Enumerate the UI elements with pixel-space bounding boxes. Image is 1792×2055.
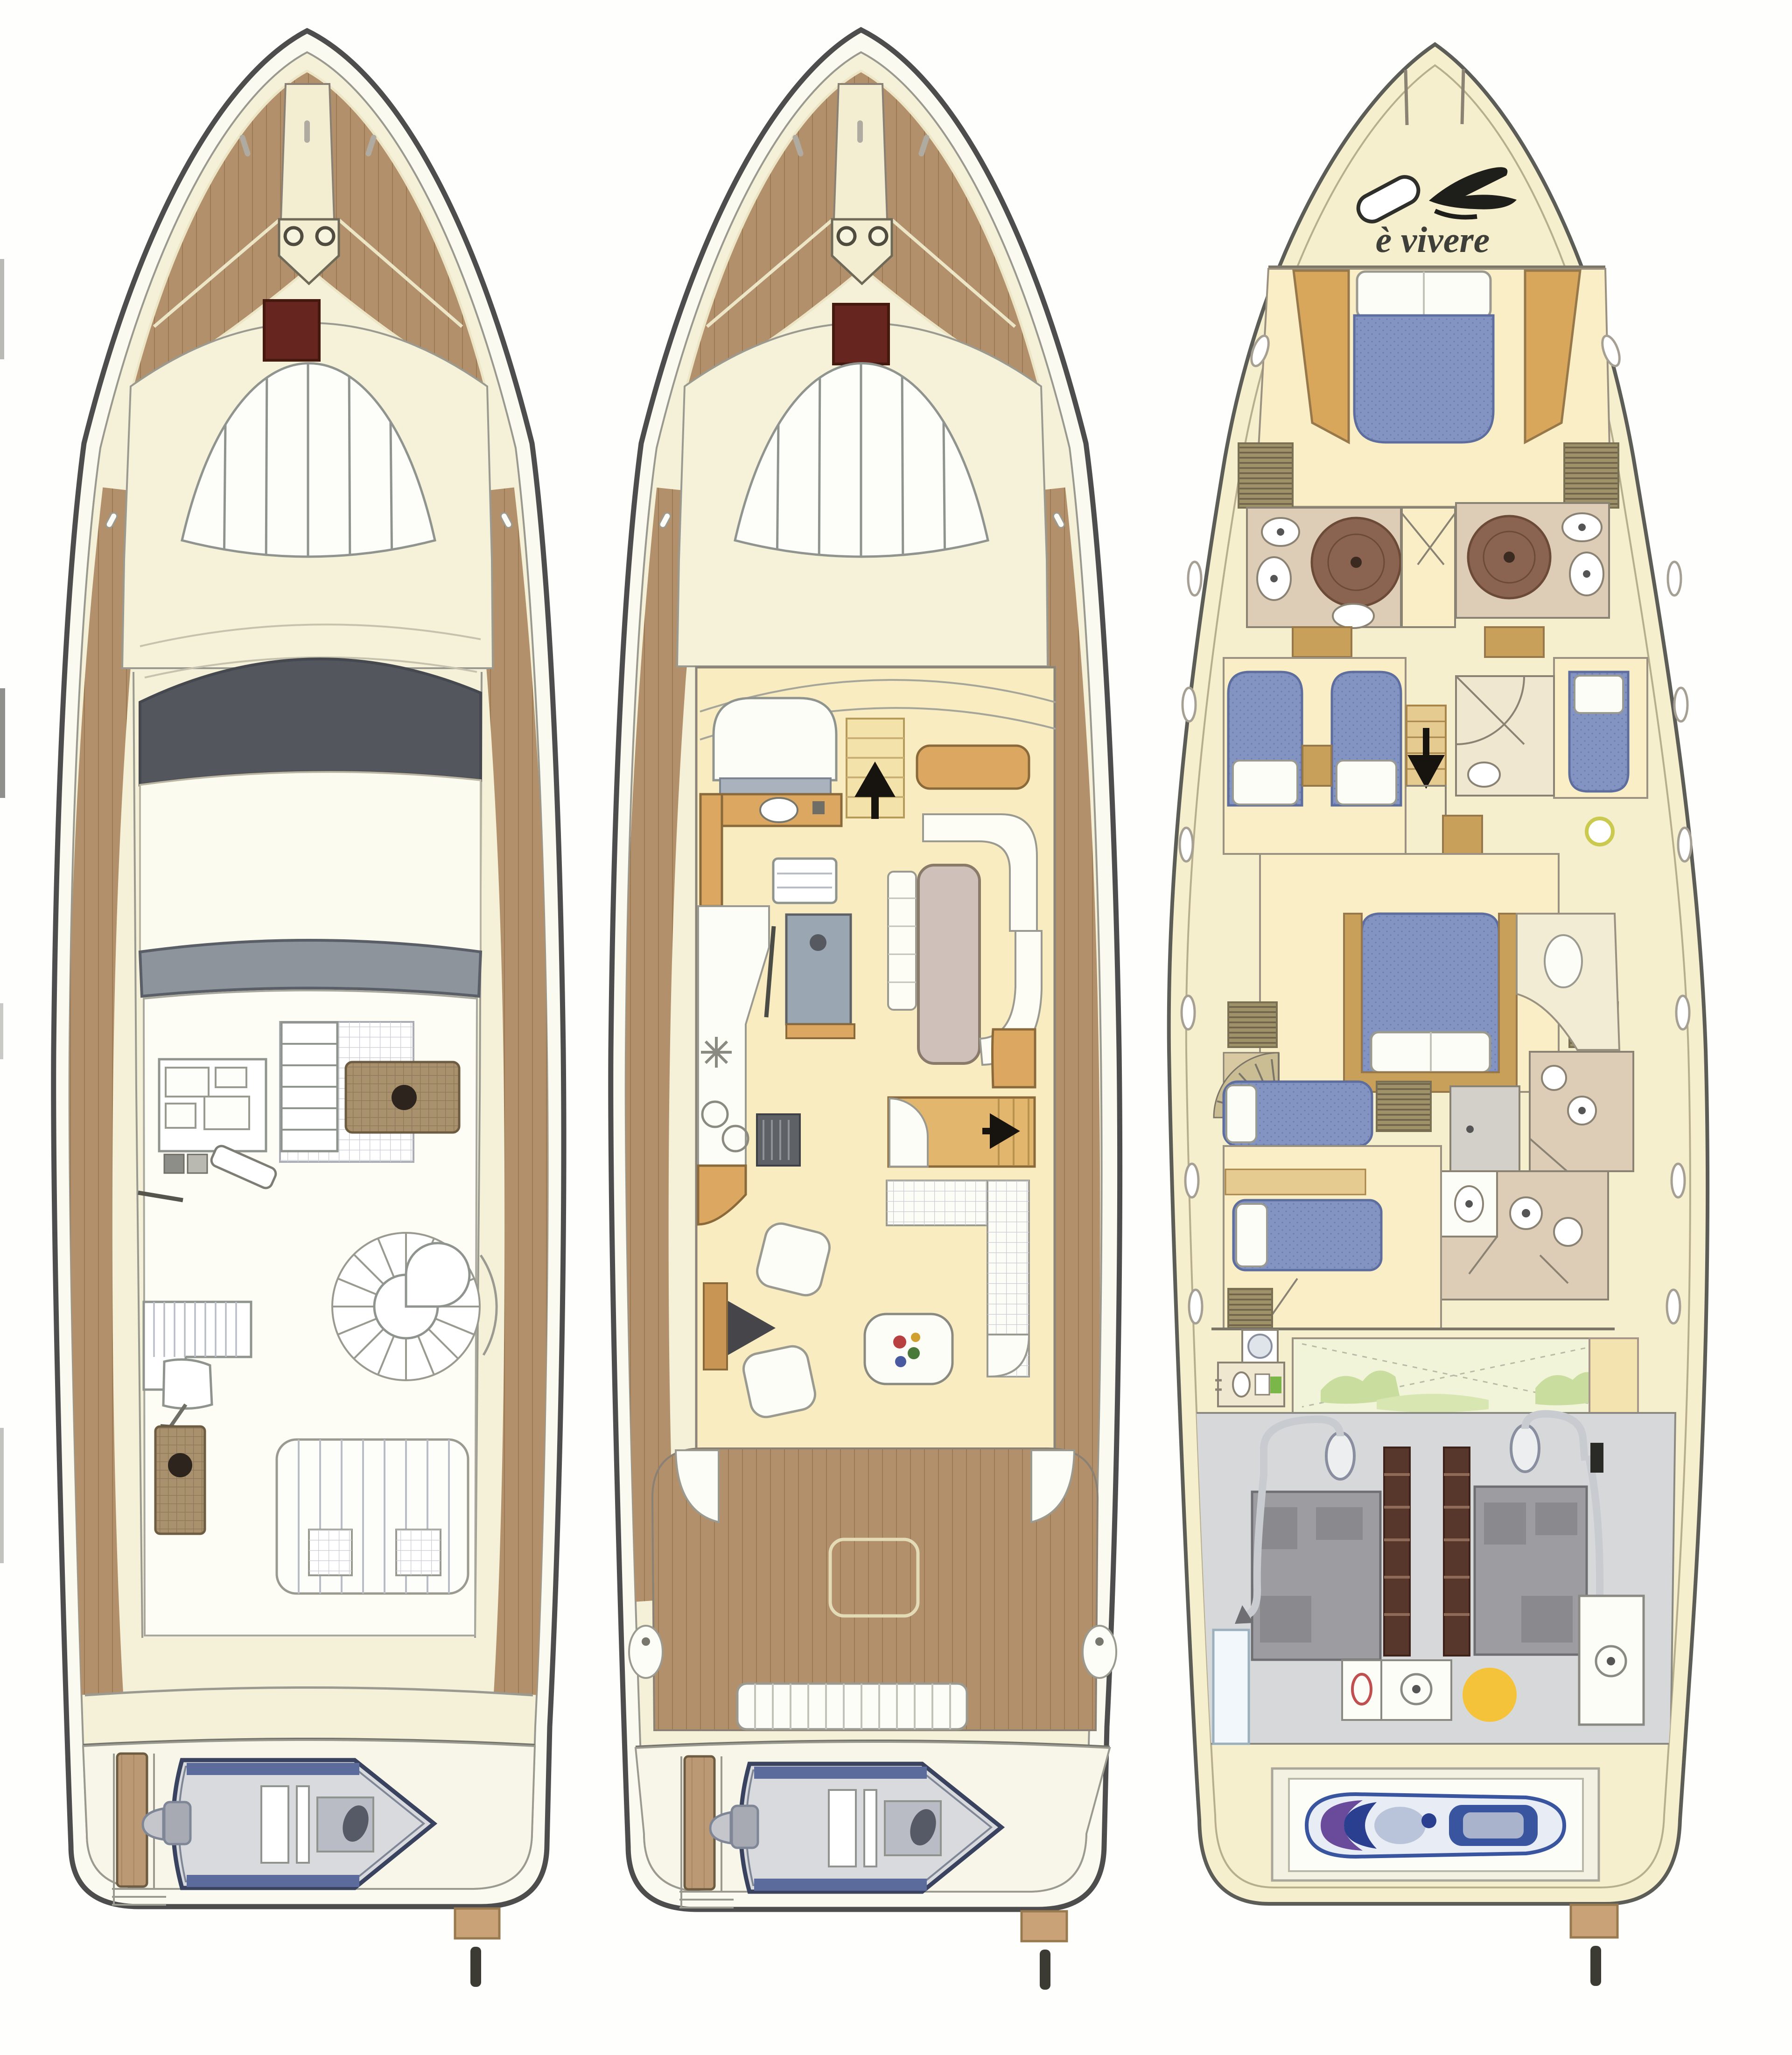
svg-text:è vivere: è vivere (1376, 219, 1490, 260)
